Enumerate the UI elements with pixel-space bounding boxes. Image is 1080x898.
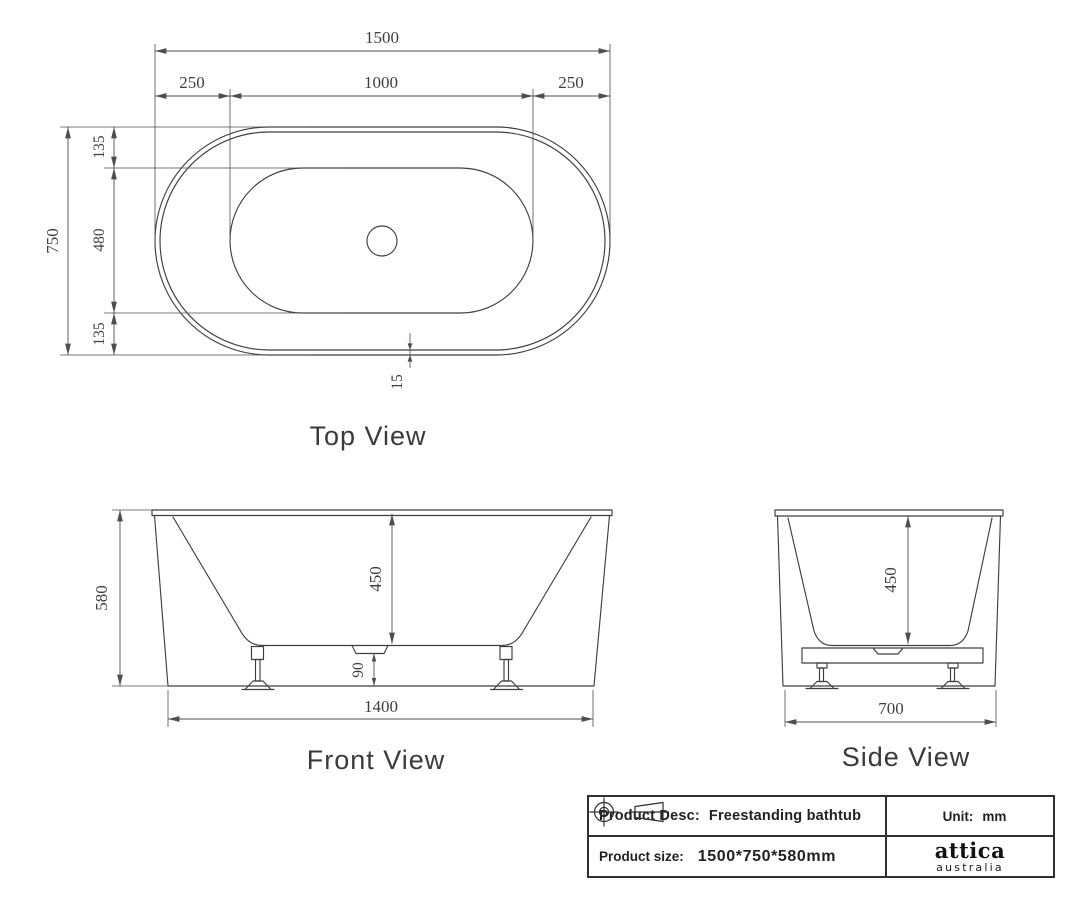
side-view: 450 700 Side View bbox=[775, 510, 1003, 772]
side-body-outline bbox=[778, 516, 1001, 686]
unit-cell: Unit: mm bbox=[887, 797, 1053, 837]
drawing-page: { "drawing": { "product": "Freestanding … bbox=[0, 0, 1080, 898]
tub-outer-rim-outline bbox=[155, 127, 610, 355]
title-block: Product Desc: Freestanding bathtub Unit:… bbox=[587, 795, 1055, 878]
foot-stem bbox=[256, 660, 261, 682]
foot-stem bbox=[504, 660, 509, 682]
front-view-title: Front View bbox=[307, 745, 446, 775]
product-size-label: Product size: bbox=[599, 849, 684, 864]
brand-cell: attica australia bbox=[887, 837, 1053, 876]
top-view: 1500 250 1000 250 750 135 480 135 15 Top… bbox=[43, 28, 610, 451]
unit-label: Unit: bbox=[943, 809, 974, 824]
front-view: 450 90 580 1400 Front View bbox=[92, 510, 612, 775]
dim-label-bottom-margin: 135 bbox=[91, 322, 108, 346]
dim-label-overall-length: 1500 bbox=[365, 28, 399, 47]
technical-drawing-canvas: 1500 250 1000 250 750 135 480 135 15 Top… bbox=[0, 0, 1080, 898]
foot-block bbox=[252, 647, 264, 660]
projection-target-icon bbox=[590, 798, 619, 827]
dim-label-right-offset: 250 bbox=[558, 73, 584, 92]
side-base-plate bbox=[802, 648, 983, 663]
dim-label-top-margin: 135 bbox=[91, 135, 108, 159]
brand-sub-label: australia bbox=[936, 862, 1004, 873]
side-rim-outline bbox=[775, 510, 1003, 516]
front-left-foot bbox=[242, 647, 274, 690]
front-rim-outline bbox=[152, 510, 612, 516]
dim-label-base-length: 1400 bbox=[364, 697, 398, 716]
dim-label-overall-width: 750 bbox=[43, 228, 62, 254]
foot-stem bbox=[820, 668, 824, 682]
tub-inner-rim-outline bbox=[160, 132, 605, 350]
brand-logo: attica bbox=[935, 840, 1005, 861]
dim-label-base-width: 700 bbox=[878, 699, 904, 718]
side-right-foot bbox=[937, 663, 969, 689]
dim-label-drain-height: 90 bbox=[350, 662, 367, 678]
foot-pad bbox=[491, 681, 523, 690]
foot-pad bbox=[242, 681, 274, 690]
product-size-value: 1500*750*580mm bbox=[698, 848, 836, 866]
top-view-title: Top View bbox=[309, 421, 426, 451]
dim-label-left-offset: 250 bbox=[179, 73, 205, 92]
foot-pad bbox=[937, 682, 969, 689]
projection-cone-icon bbox=[629, 803, 669, 822]
dim-label-rim-thickness: 15 bbox=[389, 374, 406, 390]
first-angle-projection-icon bbox=[589, 797, 694, 827]
dim-label-overall-height: 580 bbox=[92, 585, 111, 611]
drain-circle bbox=[367, 226, 397, 256]
tub-basin-outline bbox=[230, 168, 533, 313]
dim-label-side-inner-depth: 450 bbox=[881, 567, 900, 593]
product-size-cell: Product size: 1500*750*580mm bbox=[589, 837, 887, 876]
foot-block bbox=[500, 647, 512, 660]
dim-arrow bbox=[408, 343, 413, 350]
side-left-foot bbox=[806, 663, 838, 689]
side-view-title: Side View bbox=[842, 742, 971, 772]
side-base-plate-notch bbox=[873, 648, 903, 654]
front-right-foot bbox=[491, 647, 523, 690]
dim-label-front-inner-depth: 450 bbox=[366, 566, 385, 592]
unit-value: mm bbox=[982, 809, 1006, 824]
dim-label-inner-length: 1000 bbox=[364, 73, 398, 92]
front-drain-outlet bbox=[352, 646, 388, 654]
foot-block bbox=[817, 663, 827, 668]
foot-stem bbox=[951, 668, 955, 682]
dim-label-inner-width: 480 bbox=[91, 228, 108, 252]
foot-block bbox=[948, 663, 958, 668]
product-desc-value: Freestanding bathtub bbox=[709, 808, 861, 824]
foot-pad bbox=[806, 682, 838, 689]
dim-arrow bbox=[408, 355, 413, 362]
